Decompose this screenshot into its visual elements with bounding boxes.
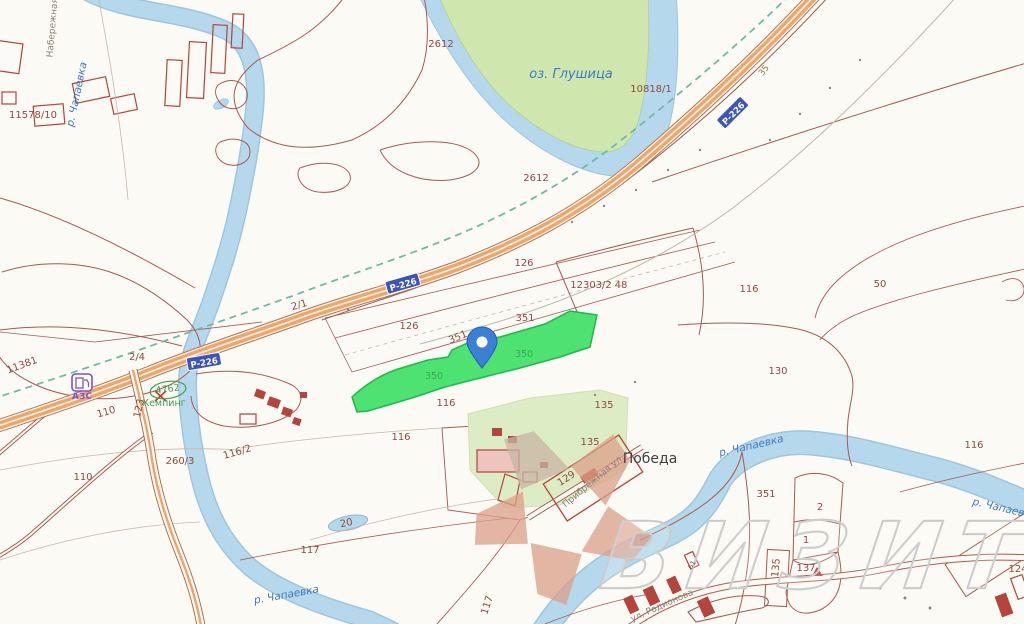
map-label: р. Чапаевка <box>64 61 90 129</box>
map-label: 117 <box>300 545 319 556</box>
map-label: 2612 <box>428 39 453 50</box>
map-label: 351 <box>515 313 534 324</box>
map-label: 110 <box>96 405 117 421</box>
map-label: Кемпинг <box>142 398 185 409</box>
road-shield: Р-226 <box>716 96 750 130</box>
map-label: 110 <box>73 472 92 483</box>
map-label: 130 <box>768 366 787 377</box>
map-svg[interactable]: ВИЗИТ Набережнаяр. Чапаевка11578/102612о… <box>0 0 1024 624</box>
map-canvas[interactable]: ВИЗИТ Набережнаяр. Чапаевка11578/102612о… <box>0 0 1024 624</box>
map-label: Набережная <box>45 0 60 58</box>
map-label: 116 <box>391 432 410 443</box>
map-label: 48 <box>615 280 628 291</box>
map-label: 116 <box>964 440 983 451</box>
map-label: 4762 <box>155 382 180 396</box>
gas-station-icon[interactable] <box>72 374 92 391</box>
map-label: 12303/2 <box>570 280 612 291</box>
map-label: 126 <box>514 258 533 269</box>
map-label: 135 <box>770 558 783 578</box>
map-label: 135 <box>580 437 599 448</box>
map-label: 2 <box>817 502 823 513</box>
map-label: 50 <box>874 279 887 290</box>
map-label: 1 <box>803 535 809 546</box>
map-label: 2612 <box>523 173 548 184</box>
map-label: 350 <box>515 349 533 360</box>
map-label: 10818/1 <box>630 84 672 95</box>
map-label: Победа <box>623 451 678 467</box>
map-label: 35 <box>757 63 772 78</box>
map-label: 135 <box>594 400 613 411</box>
map-label: 116 <box>739 284 758 295</box>
map-label: 116 <box>436 398 455 409</box>
map-label: 11381 <box>5 355 39 376</box>
map-label: 126 <box>399 321 418 332</box>
map-label: 124 <box>1008 564 1024 575</box>
map-label: 351 <box>756 489 775 500</box>
map-label: 117 <box>479 594 495 616</box>
map-label: оз. Глушица <box>529 67 613 82</box>
map-label: 350 <box>425 371 443 382</box>
highway-r226 <box>0 0 818 428</box>
map-label: АЗС <box>72 392 92 402</box>
map-label: 11578/10 <box>9 110 57 121</box>
map-label: 137 <box>796 563 815 574</box>
watermark-text: ВИЗИТ <box>595 502 1024 609</box>
map-label: 2/4 <box>129 352 145 363</box>
map-label: 116/2 <box>222 443 253 462</box>
map-label: 260/3 <box>166 456 195 467</box>
